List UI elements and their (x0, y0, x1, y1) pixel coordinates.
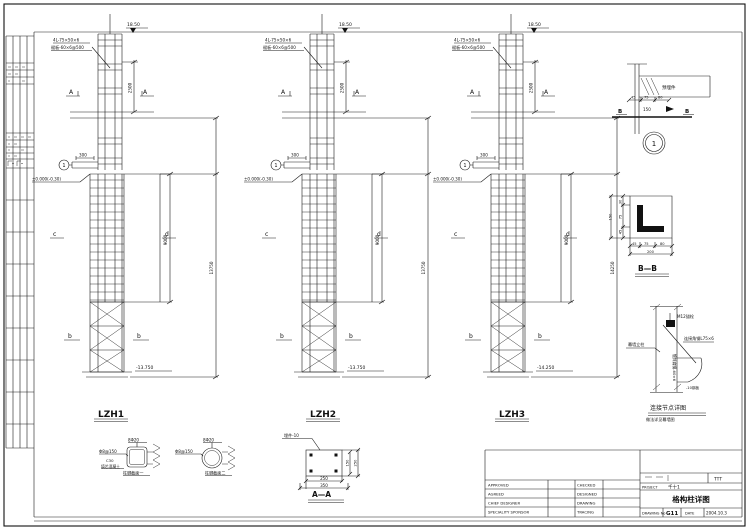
column-labels-lzh3: LZH3 18.50 4L-75×50×6 缀板-60×6@500 A A 25… (433, 22, 615, 420)
column-elevation-lzh1 (32, 14, 219, 422)
bb-bottom-dim: 75 (644, 242, 649, 246)
detail1-dim: 75 (644, 96, 649, 100)
bb-left-dim: 45 (619, 230, 623, 235)
base-elevation-label: -13.750 (136, 365, 154, 371)
base-elevation-label: -14.250 (537, 365, 555, 371)
bb-left-total: 150 (609, 213, 613, 221)
beam-embed-label: 预埋件 (662, 84, 676, 91)
total-dim: 13750 (209, 261, 214, 274)
column-name-label: LZH1 (98, 410, 124, 420)
titleblock-role-label: DRAWING (577, 501, 596, 506)
section-cut-letter: A (355, 89, 360, 96)
rebar-label: 8Φ20 (128, 438, 139, 443)
anchor-block (666, 320, 675, 327)
section-cut-letter: b (538, 333, 542, 340)
connector-label: 连接角钢L75×6 (684, 335, 714, 341)
member-annotation: 4L-75×50×6 (53, 38, 80, 43)
titleblock-role-label: APPROVED (488, 483, 509, 488)
section-cut-letter: b (137, 333, 141, 340)
ground-elevation-label: ±0.000(-0.30) (433, 177, 462, 182)
top-elevation-label: 18.50 (127, 22, 140, 28)
batten-annotation: 缀板-60×6@500 (452, 44, 485, 50)
aa-bottom-dim: 350 (320, 483, 328, 488)
section-cut-letter: A (69, 89, 74, 96)
detail-bracket: M12锚栓 连接角钢L75×6 幕墙立柱 镀锌扁钢-60×6 -10钢板 连接节… (626, 304, 714, 422)
section-flag-letter: B (685, 109, 689, 115)
embed-dim: 9000 (163, 234, 168, 245)
section-cut-letter: c (53, 231, 56, 238)
titleblock-role-label: TRACING (576, 510, 594, 515)
drawing-no: G11 (666, 511, 678, 517)
drawing-canvas: LZH1 18.50 4L-75×50×6 缀板-60×6@500 A A 25… (0, 0, 749, 530)
member-annotation: 4L-75×50×6 (454, 38, 481, 43)
column-labels-lzh2: LZH2 18.50 4L-75×50×6 缀板-60×6@500 A A 25… (244, 22, 426, 420)
section-caption: 柱脚截面二 (205, 470, 225, 476)
cad-sheet: LZH1 18.50 4L-75×50×6 缀板-60×6@500 A A 25… (0, 0, 749, 530)
ground-elevation-label: ±0.000(-0.30) (32, 177, 61, 182)
bb-left-dim: 30 (619, 199, 623, 204)
section-cut-letter: A (470, 89, 475, 96)
bb-left-dim: 75 (619, 215, 623, 220)
column-labels-lzh1: LZH1 18.50 4L-75×50×6 缀板-60×6@500 A A 25… (32, 22, 214, 420)
column-elevation-lzh2 (244, 14, 431, 422)
batten-annotation: 缀板-60×6@500 (51, 44, 84, 50)
section-cut-letter: A (143, 89, 148, 96)
section-cut-letter: c (454, 231, 457, 238)
batten-annotation: 缀板-60×6@500 (263, 44, 296, 50)
bb-bottom-dim: 80 (660, 242, 665, 246)
embed-plate-note: 埋件-10 (284, 432, 299, 438)
detail-connection-1: 预埋件 45 75 80 150 B B 1 (612, 64, 710, 154)
section-s1: 8Φ20 Φ8@150 C30 填芯混凝土 柱脚截面一 (99, 438, 160, 476)
beam-dim: 300 (79, 153, 87, 158)
revision-strip (6, 36, 34, 448)
titleblock-role-label: DESIGNED (577, 492, 597, 497)
titleblock-role-label: AGREED (488, 492, 504, 497)
stirrup-label: Φ8@150 (175, 449, 193, 454)
total-dim: 14250 (610, 261, 615, 274)
upper-dim: 2500 (128, 82, 133, 93)
ground-elevation-label: ±0.000(-0.30) (244, 177, 273, 182)
section-title: B—B (638, 264, 657, 273)
upper-dim: 2500 (340, 82, 345, 93)
detail1-below-dim: 150 (643, 107, 651, 112)
top-elevation-label: 18.50 (339, 22, 352, 28)
column-elevation-lzh3 (433, 14, 620, 422)
detail-bubble-number: 1 (463, 163, 466, 169)
detail1-dim: 80 (658, 96, 663, 100)
infill-note: 填芯混凝土 (101, 464, 120, 469)
section-b-b: 30 75 45 150 45 75 80 200 B—B (609, 194, 675, 277)
embed-dim: 9000 (564, 234, 569, 245)
titleblock-role-label: CHECKED (577, 483, 595, 488)
title-block: APPROVED AGREED CHIEF DESIGNER SPECIALIT… (485, 450, 742, 517)
section-cut-letter: b (280, 333, 284, 340)
column-name-label: LZH2 (310, 410, 336, 420)
bb-bottom-dim: 45 (632, 242, 637, 246)
beam-dim: 300 (291, 153, 299, 158)
angle-steel-section (637, 205, 664, 232)
hatch-zigzag (222, 446, 235, 470)
detail1-dim: 45 (631, 96, 636, 100)
drawing-title: 格构柱详图 (672, 494, 710, 504)
base-elevation-label: -13.750 (348, 365, 366, 371)
rebar-label: 8Φ20 (203, 438, 214, 443)
section-caption: 柱脚截面一 (123, 470, 143, 476)
plate-vertical-label: 镀锌扁钢-60×6 (672, 354, 677, 382)
embed-dim: 9000 (375, 234, 380, 245)
beam-dim: 300 (480, 153, 488, 158)
stirrup-label: Φ8@150 (99, 449, 117, 454)
section-title: A—A (312, 490, 331, 499)
anchor-label: M12锚栓 (677, 313, 694, 319)
section-cut-letter: b (469, 333, 473, 340)
detail-bubble-number: 1 (652, 140, 656, 148)
aa-right-dim: 250 (354, 459, 358, 467)
section-a-a: 埋件-10 150 250 250 350 A—A (282, 432, 360, 503)
detail-title: 连接节点详图 (650, 404, 686, 412)
aa-right-dim: 150 (346, 459, 350, 467)
section-s2: 8Φ20 Φ8@150 柱脚截面二 (175, 438, 235, 476)
cert-code: TTT (713, 477, 722, 483)
column-name-label: LZH3 (499, 410, 525, 420)
direction-arrow-icon (666, 106, 674, 112)
section-flag-letter: B (618, 109, 622, 115)
section-cut-letter: c (265, 231, 268, 238)
detail-bubble-number: 1 (274, 163, 277, 169)
project-value: 千十1 (668, 484, 680, 491)
section-cut-letter: A (544, 89, 549, 96)
titleblock-role-label: SPECIALITY SPONSOR (488, 510, 529, 515)
member-annotation: 4L-75×50×6 (265, 38, 292, 43)
mullion-label: 幕墙立柱 (628, 341, 644, 347)
project-label: PROJECT (642, 486, 658, 490)
detail-bubble-number: 1 (62, 163, 65, 169)
date-label: DATE (685, 512, 695, 516)
stamp-marks (645, 475, 668, 481)
date-value: 2004.10.3 (706, 511, 727, 516)
section-cut-letter: b (349, 333, 353, 340)
plate-note: -10钢板 (686, 385, 699, 390)
detail-subtitle: 做法详见幕墙图 (646, 416, 675, 422)
upper-dim: 2500 (529, 82, 534, 93)
infill-note: C30 (106, 458, 114, 463)
titleblock-role-label: CHIEF DESIGNER (488, 501, 520, 506)
aa-bottom-dim: 250 (320, 476, 328, 481)
total-dim: 13750 (421, 261, 426, 274)
drawing-no-label: DRAWING No (642, 512, 666, 516)
section-cut-letter: A (281, 89, 286, 96)
bb-bottom-total: 200 (647, 250, 655, 254)
top-elevation-label: 18.50 (528, 22, 541, 28)
hatch-zigzag (147, 444, 160, 468)
strip-marks (8, 161, 23, 166)
section-cut-letter: b (68, 333, 72, 340)
